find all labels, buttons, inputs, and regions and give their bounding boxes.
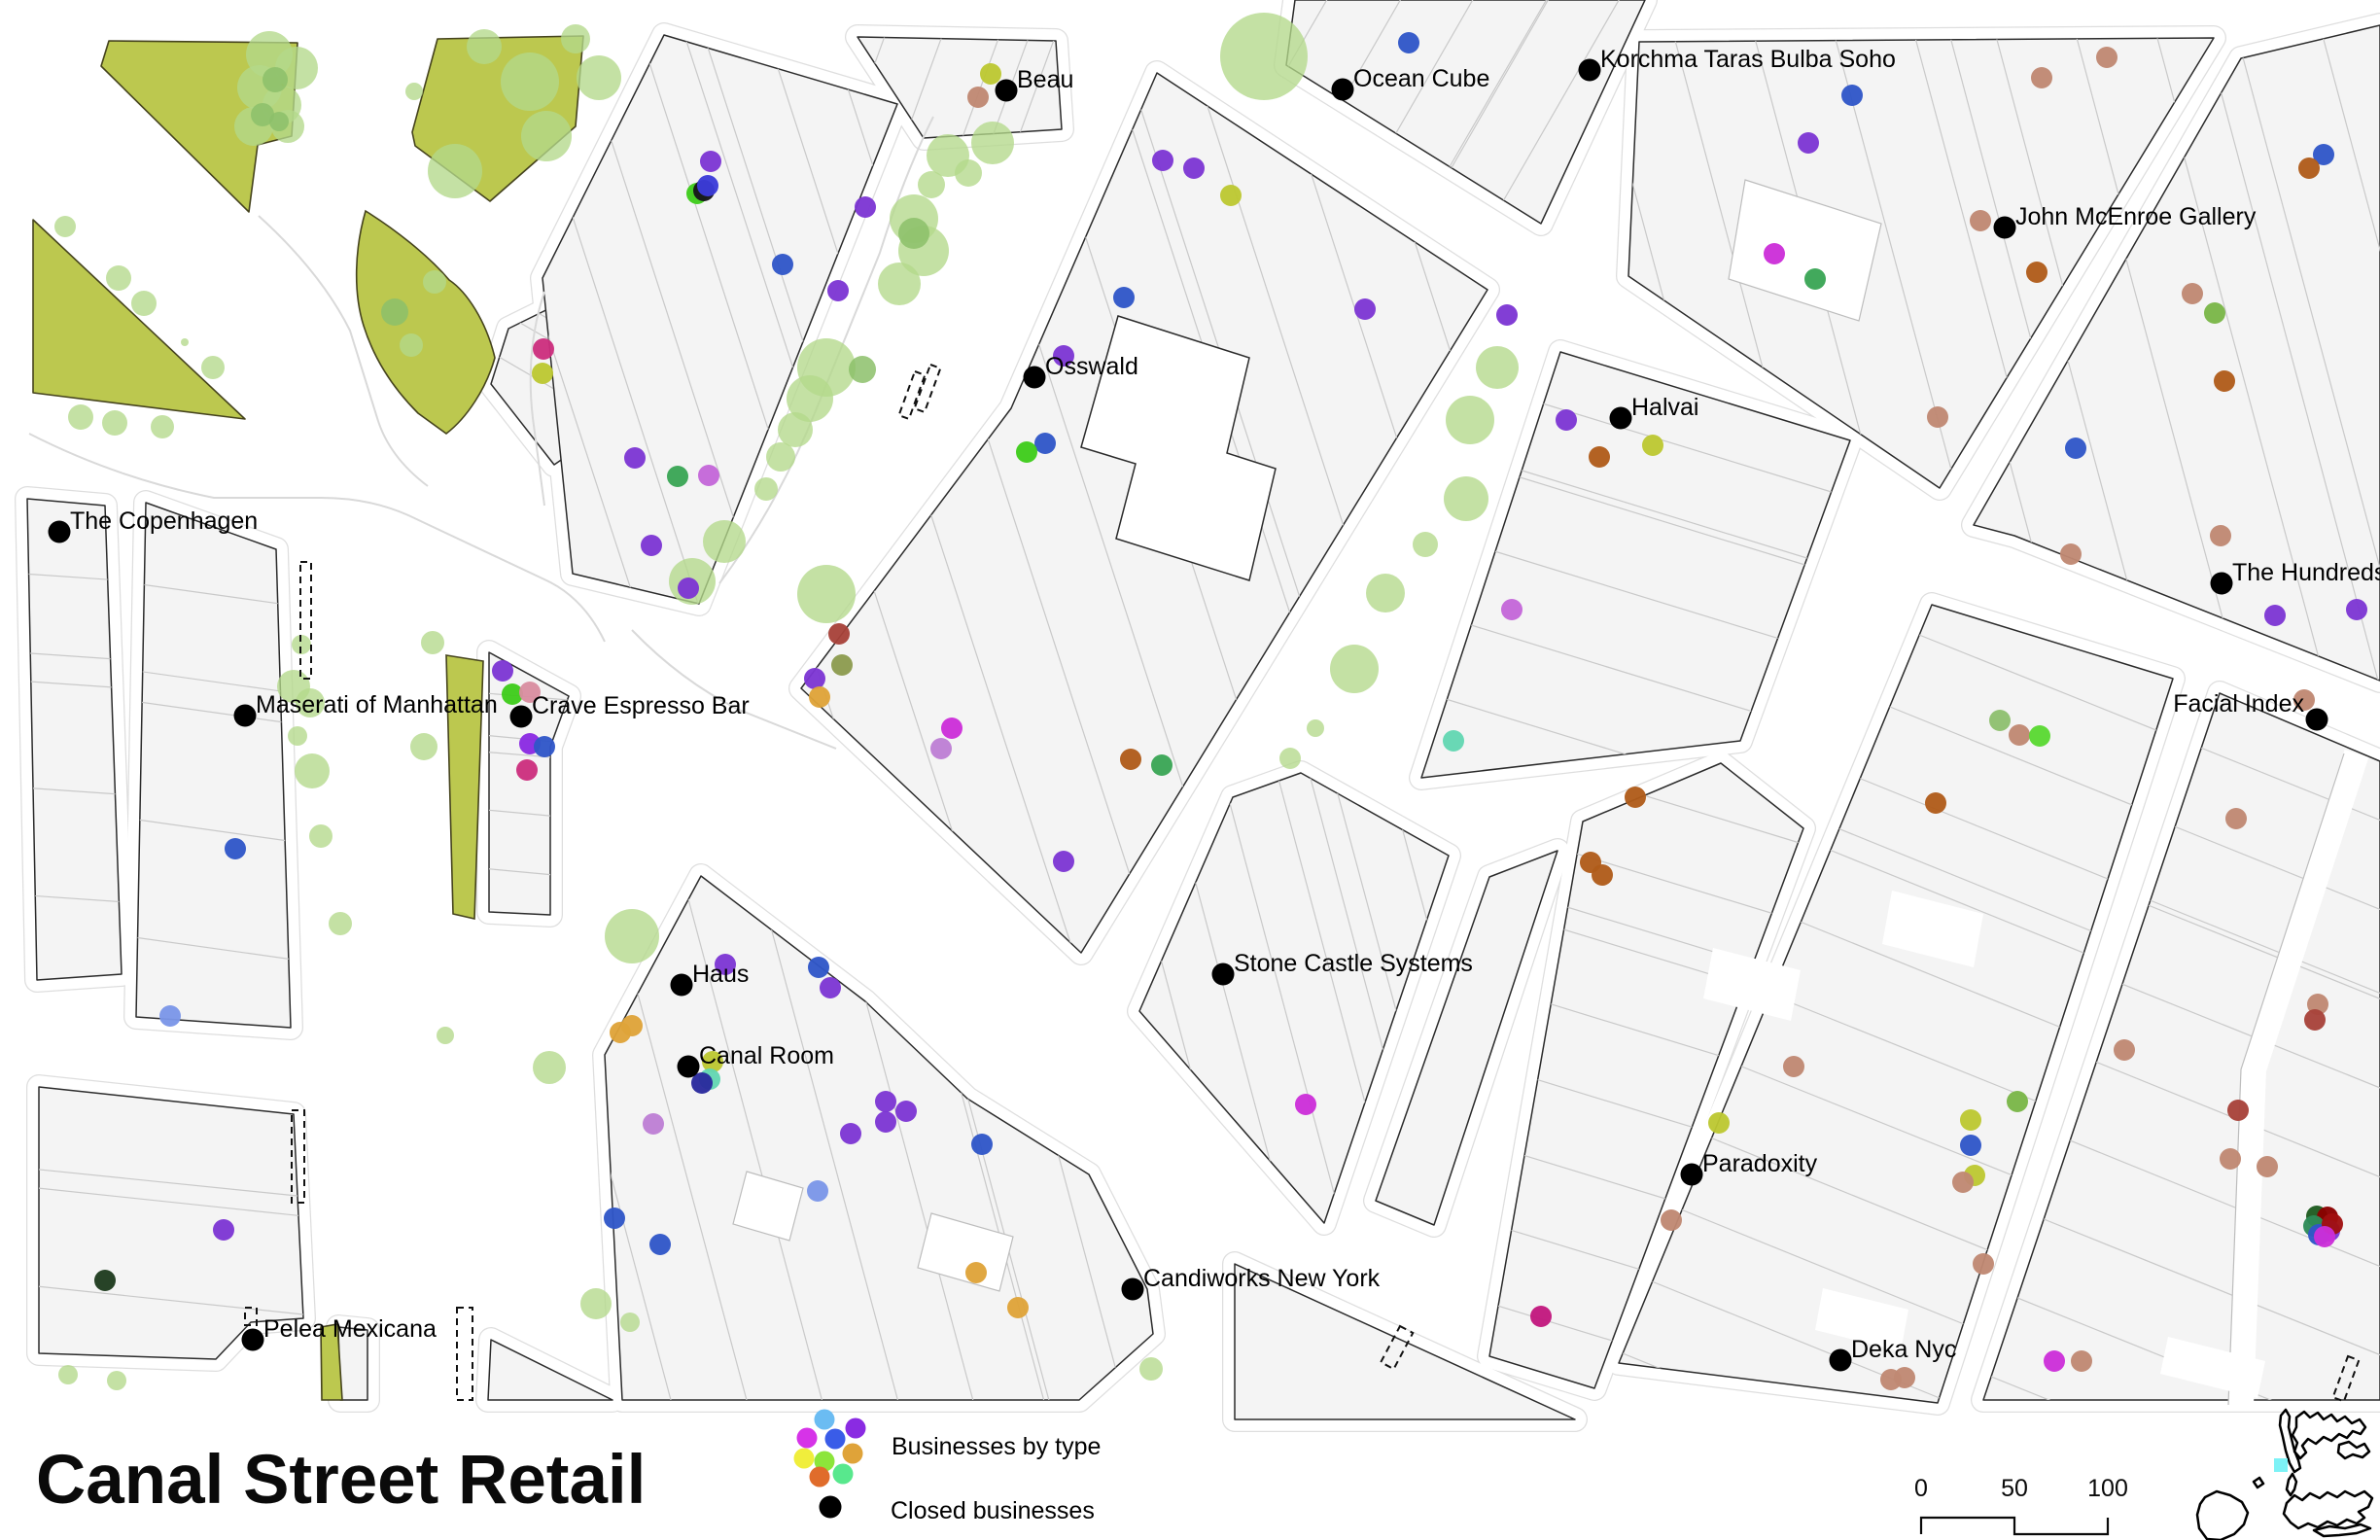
svg-text:John McEnroe Gallery: John McEnroe Gallery xyxy=(2015,203,2257,230)
svg-text:Stone Castle Systems: Stone Castle Systems xyxy=(1234,950,1473,977)
svg-text:Ocean Cube: Ocean Cube xyxy=(1353,65,1489,92)
svg-text:Osswald: Osswald xyxy=(1045,353,1138,380)
svg-text:Crave Espresso Bar: Crave Espresso Bar xyxy=(532,692,750,719)
svg-text:Canal Street Retail: Canal Street Retail xyxy=(36,1442,646,1519)
svg-text:The Hundreds: The Hundreds xyxy=(2232,559,2380,586)
svg-text:Paradoxity: Paradoxity xyxy=(1702,1150,1818,1177)
svg-text:Closed businesses: Closed businesses xyxy=(891,1497,1095,1524)
svg-text:The Copenhagen: The Copenhagen xyxy=(70,507,258,535)
svg-text:Deka Nyc: Deka Nyc xyxy=(1851,1336,1956,1363)
svg-text:50: 50 xyxy=(2001,1475,2028,1502)
svg-text:Canal Room: Canal Room xyxy=(699,1042,834,1069)
svg-text:Facial Index: Facial Index xyxy=(2173,690,2304,717)
svg-text:Beau: Beau xyxy=(1017,66,1073,93)
svg-text:Haus: Haus xyxy=(692,961,749,988)
svg-text:100: 100 xyxy=(2087,1475,2128,1502)
svg-text:Halvai: Halvai xyxy=(1631,394,1698,421)
svg-text:Pelea Mexicana: Pelea Mexicana xyxy=(263,1315,437,1343)
svg-text:Maserati of Manhattan: Maserati of Manhattan xyxy=(256,691,498,718)
svg-text:Korchma Taras Bulba Soho: Korchma Taras Bulba Soho xyxy=(1600,46,1896,73)
svg-text:Candiworks New York: Candiworks New York xyxy=(1143,1265,1381,1292)
svg-text:0: 0 xyxy=(1914,1475,1928,1502)
svg-text:Businesses by type: Businesses by type xyxy=(892,1433,1101,1460)
